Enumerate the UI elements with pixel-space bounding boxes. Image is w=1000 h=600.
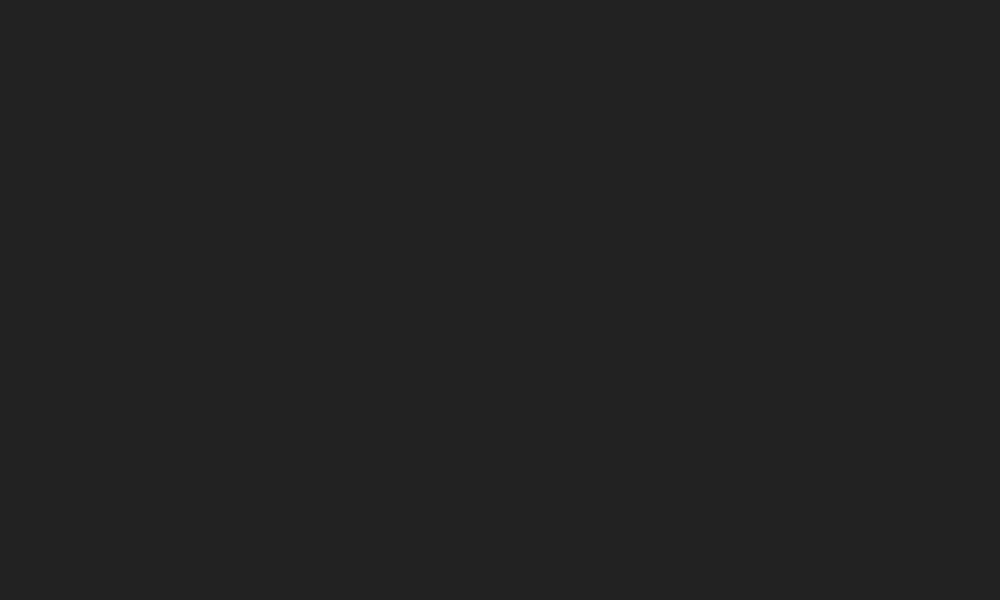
- screenshot-stage: [0, 0, 1000, 600]
- resort-aerial-render: [0, 0, 1000, 600]
